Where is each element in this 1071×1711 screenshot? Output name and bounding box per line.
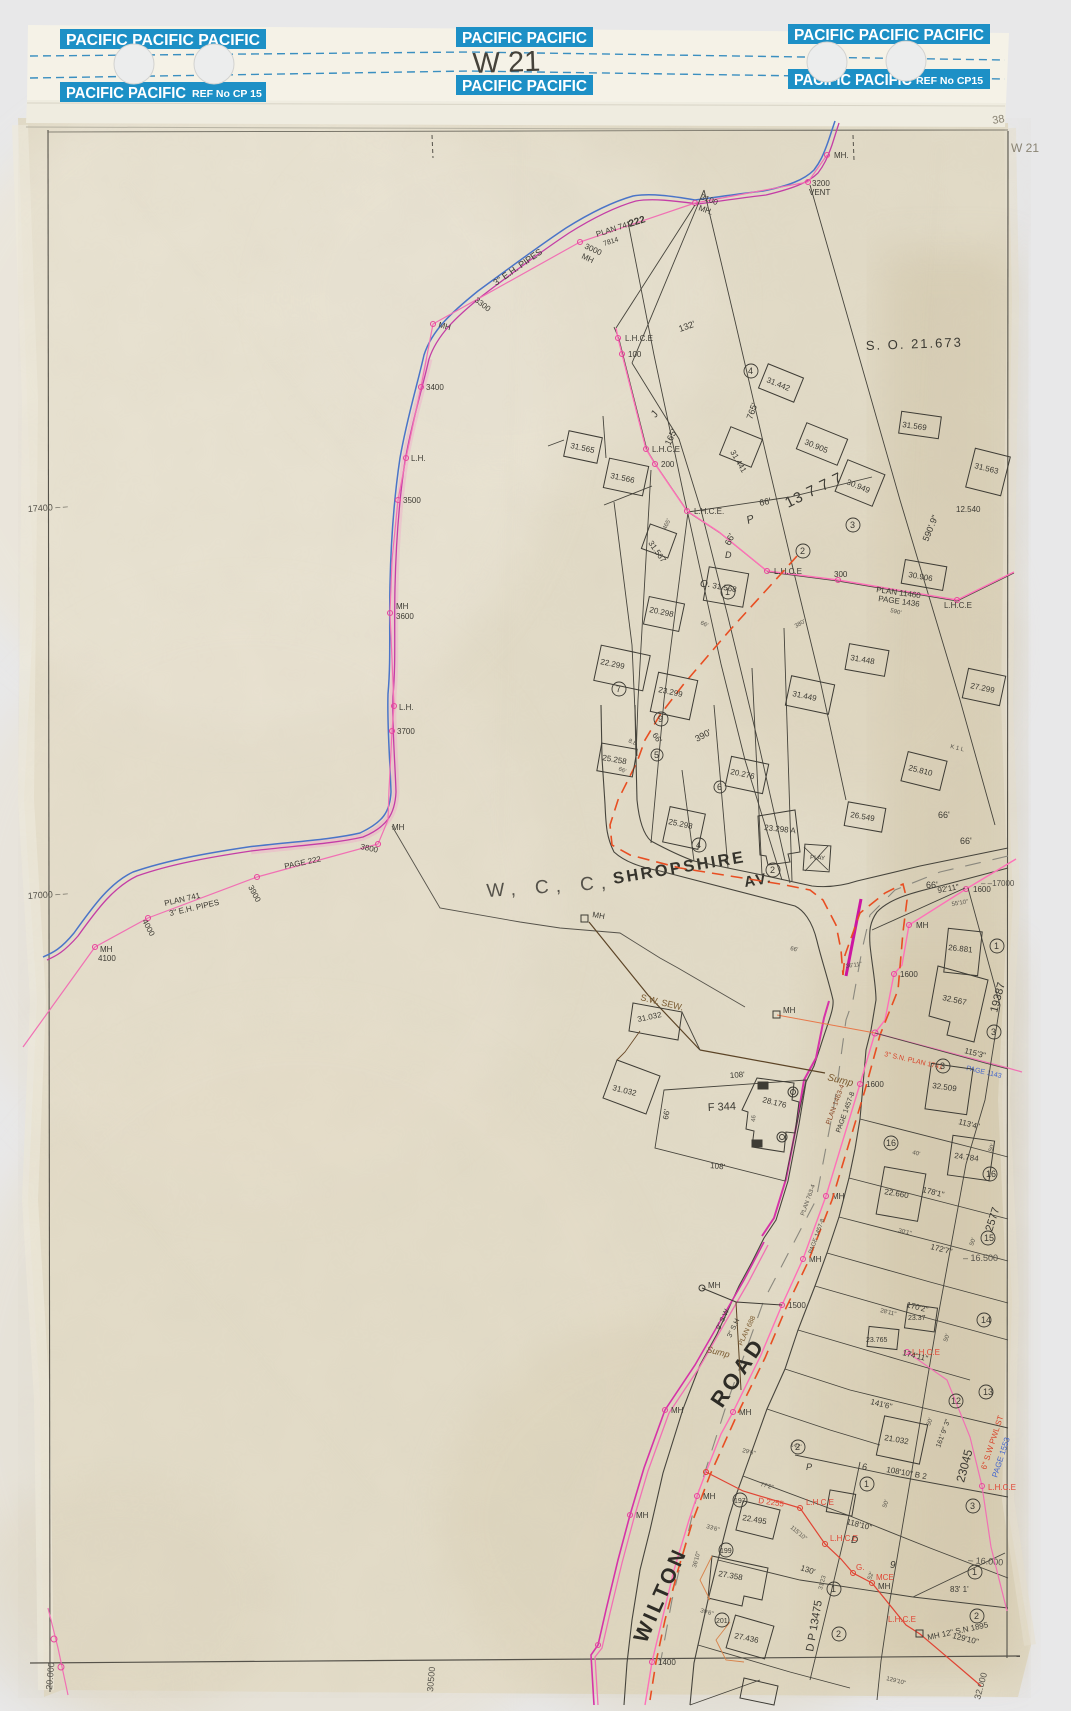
- svg-text:L.H.C.E: L.H.C.E: [652, 445, 680, 454]
- svg-text:L.H.C.E: L.H.C.E: [988, 1483, 1016, 1492]
- svg-text:MH: MH: [878, 1582, 891, 1591]
- svg-text:9: 9: [890, 1560, 896, 1571]
- svg-text:66': 66': [938, 810, 950, 820]
- svg-text:3: 3: [970, 1501, 975, 1511]
- svg-text:REF No CP 15: REF No CP 15: [192, 88, 262, 100]
- svg-text:3500: 3500: [403, 496, 421, 505]
- svg-text:4: 4: [696, 840, 701, 850]
- svg-text:MCE: MCE: [876, 1573, 894, 1582]
- svg-text:1600: 1600: [973, 885, 991, 894]
- svg-text:L.H.C.E.: L.H.C.E.: [694, 507, 724, 516]
- svg-text:300: 300: [834, 570, 848, 579]
- svg-text:2: 2: [974, 1611, 979, 1621]
- svg-text:4100: 4100: [98, 954, 116, 963]
- svg-text:MH: MH: [703, 1492, 716, 1501]
- svg-text:MH: MH: [708, 1281, 721, 1290]
- svg-text:3700: 3700: [397, 727, 415, 736]
- svg-text:12: 12: [951, 1396, 961, 1406]
- svg-text:2: 2: [770, 865, 775, 875]
- svg-text:L.H.C.E: L.H.C.E: [625, 334, 653, 343]
- svg-text:1400: 1400: [658, 1658, 676, 1667]
- svg-text:1: 1: [994, 941, 999, 951]
- svg-text:200: 200: [661, 460, 675, 469]
- svg-text:23.765: 23.765: [866, 1337, 888, 1344]
- svg-text:38: 38: [991, 113, 1005, 127]
- svg-text:3200: 3200: [812, 179, 830, 188]
- svg-text:2: 2: [800, 546, 805, 556]
- svg-text:PLAY: PLAY: [810, 855, 825, 862]
- svg-text:MH: MH: [671, 1406, 684, 1415]
- svg-text:MH: MH: [100, 945, 113, 954]
- svg-text:REF No CP15: REF No CP15: [916, 75, 983, 87]
- svg-text:46: 46: [751, 1114, 758, 1122]
- svg-text:83' 1': 83' 1': [950, 1585, 969, 1594]
- svg-text:6: 6: [717, 782, 722, 792]
- svg-text:1500: 1500: [788, 1301, 806, 1310]
- svg-text:1600: 1600: [866, 1080, 884, 1089]
- svg-text:MH: MH: [739, 1408, 752, 1417]
- svg-text:66': 66': [661, 1108, 672, 1120]
- svg-text:D: D: [725, 550, 732, 560]
- svg-text:201: 201: [716, 1618, 728, 1625]
- svg-text:F 344: F 344: [708, 1101, 737, 1114]
- svg-text:108': 108': [710, 1161, 726, 1172]
- svg-text:MH: MH: [636, 1511, 649, 1520]
- svg-text:L.H.: L.H.: [411, 454, 426, 463]
- svg-text:1: 1: [831, 1584, 836, 1594]
- svg-text:13: 13: [983, 1387, 993, 1397]
- svg-text:16: 16: [986, 1169, 996, 1179]
- svg-text:PACIFIC PACIFIC PACIFIC: PACIFIC PACIFIC PACIFIC: [66, 32, 260, 49]
- svg-text:L.H.C.E: L.H.C.E: [806, 1498, 834, 1507]
- svg-text:23.37: 23.37: [908, 1315, 926, 1322]
- svg-text:66': 66': [960, 836, 972, 846]
- svg-text:9: 9: [658, 714, 663, 724]
- svg-text:6: 6: [862, 1462, 867, 1472]
- svg-text:14: 14: [981, 1315, 991, 1325]
- svg-text:W 21: W 21: [472, 46, 541, 80]
- svg-text:MH: MH: [783, 1006, 796, 1015]
- svg-text:2: 2: [836, 1629, 841, 1639]
- svg-text:3: 3: [940, 1061, 945, 1071]
- svg-text:W 21: W 21: [1011, 141, 1039, 155]
- svg-text:1: 1: [725, 587, 730, 597]
- svg-text:P: P: [806, 1462, 812, 1472]
- svg-text:G.: G.: [856, 1563, 864, 1572]
- svg-text:PACIFIC PACIFIC: PACIFIC PACIFIC: [462, 30, 587, 47]
- svg-text:7: 7: [616, 684, 621, 694]
- svg-text:MH: MH: [396, 602, 409, 611]
- svg-text:PACIFIC PACIFIC: PACIFIC PACIFIC: [462, 78, 587, 95]
- svg-text:3: 3: [991, 1027, 996, 1037]
- svg-text:PACIFIC PACIFIC: PACIFIC PACIFIC: [66, 85, 186, 102]
- svg-text:1: 1: [864, 1479, 869, 1489]
- svg-text:D: D: [851, 1535, 858, 1546]
- svg-text:15: 15: [984, 1233, 994, 1243]
- svg-text:1: 1: [972, 1567, 977, 1577]
- svg-text:199: 199: [720, 1548, 732, 1555]
- svg-text:MH: MH: [916, 921, 929, 930]
- svg-text:197: 197: [734, 1498, 746, 1505]
- svg-text:O.: O.: [700, 579, 711, 590]
- svg-text:MH.: MH.: [834, 151, 849, 160]
- svg-text:– 16.500: – 16.500: [963, 1253, 998, 1263]
- svg-text:16: 16: [886, 1138, 896, 1148]
- svg-text:L.H.C.E: L.H.C.E: [774, 567, 802, 576]
- svg-text:100: 100: [628, 350, 642, 359]
- svg-text:3: 3: [850, 520, 855, 530]
- svg-text:PACIFIC PACIFIC PACIFIC: PACIFIC PACIFIC PACIFIC: [794, 27, 984, 44]
- svg-text:108': 108': [730, 1070, 746, 1080]
- svg-text:MH: MH: [392, 823, 405, 832]
- svg-text:4: 4: [748, 366, 753, 376]
- svg-text:L.H.: L.H.: [399, 703, 414, 712]
- svg-text:5: 5: [654, 750, 659, 760]
- svg-text:12.540: 12.540: [956, 505, 981, 514]
- svg-text:L.H.C.E: L.H.C.E: [888, 1615, 916, 1624]
- svg-text:L.H.C.E: L.H.C.E: [944, 601, 972, 610]
- svg-text:3600: 3600: [396, 612, 414, 621]
- svg-text:1600: 1600: [900, 970, 918, 979]
- svg-text:3400: 3400: [426, 383, 444, 392]
